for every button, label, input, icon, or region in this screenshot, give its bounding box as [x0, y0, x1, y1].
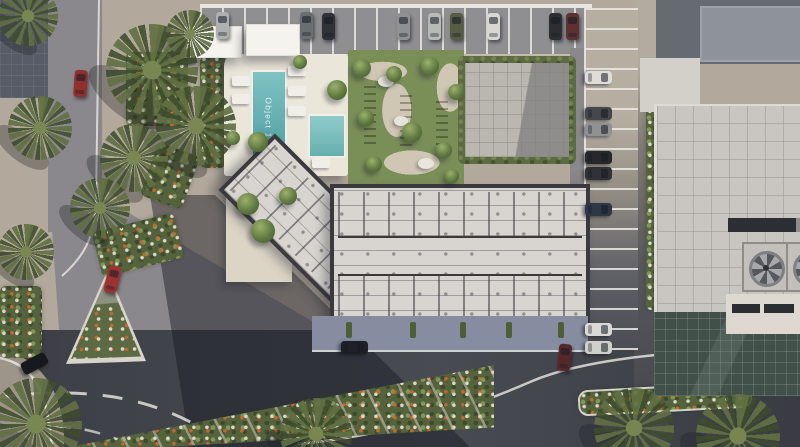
apartment-rooms	[338, 192, 582, 238]
fan-icon	[749, 251, 785, 287]
car	[487, 13, 500, 40]
hvac-fan-unit	[786, 242, 800, 292]
round-tree	[448, 84, 464, 100]
car	[428, 13, 441, 40]
walkway-planter	[558, 322, 564, 338]
car	[585, 151, 612, 164]
round-tree	[386, 66, 402, 82]
car-windshield	[551, 17, 560, 24]
fan-icon	[793, 251, 800, 287]
pool-label: Object 1	[264, 97, 274, 138]
car	[585, 341, 612, 354]
neighbor-roof-panel	[700, 6, 800, 62]
pool-lounger	[232, 94, 250, 104]
pool-lounger	[232, 76, 250, 86]
car-windshield	[601, 205, 608, 214]
car-windshield	[302, 16, 311, 23]
car-windshield	[452, 17, 461, 24]
site-plan-render: Object 1	[0, 0, 800, 447]
car-windshield	[601, 343, 608, 352]
car	[549, 13, 562, 40]
car	[566, 13, 579, 40]
palm-tree	[0, 224, 54, 280]
round-tree	[421, 57, 439, 75]
pool-lounger	[288, 106, 306, 116]
car-windshield	[601, 73, 608, 82]
car-windshield	[601, 153, 608, 162]
car	[585, 203, 612, 216]
round-tree	[445, 169, 459, 183]
round-tree	[327, 80, 347, 100]
car-windshield	[430, 17, 439, 24]
shade-canopy	[246, 24, 300, 56]
car	[300, 12, 313, 39]
kids-pool	[308, 114, 346, 158]
pool-lounger	[288, 86, 306, 96]
tower-roof-hedge	[458, 56, 576, 164]
walkway-planter	[346, 322, 352, 338]
round-tree	[358, 110, 374, 126]
round-tree	[251, 219, 275, 243]
round-tree	[366, 156, 382, 172]
apartment-wing-main	[330, 184, 590, 330]
walkway-planter	[410, 322, 416, 338]
car-windshield	[489, 17, 498, 24]
window-slit	[732, 304, 760, 313]
car	[585, 323, 612, 336]
palm-tree	[70, 178, 130, 238]
palm-tree	[156, 86, 236, 166]
car-windshield	[601, 169, 608, 178]
walkway-planter	[506, 322, 512, 338]
car	[397, 13, 410, 40]
car	[341, 341, 368, 354]
palm-tree	[8, 96, 72, 160]
round-tree	[436, 142, 452, 158]
car-windshield	[399, 17, 408, 24]
car	[585, 167, 612, 180]
round-tree	[402, 122, 422, 142]
round-tree	[226, 131, 240, 145]
window-slit	[764, 304, 794, 313]
tower-roof	[465, 63, 569, 157]
car	[585, 123, 612, 136]
boulder	[418, 158, 434, 169]
car-windshield	[601, 125, 608, 134]
car	[450, 13, 463, 40]
roof-vent-band	[728, 218, 800, 232]
round-tree	[248, 132, 268, 152]
car-windshield	[560, 348, 570, 356]
car-windshield	[601, 109, 608, 118]
car-windshield	[35, 355, 45, 366]
car	[73, 70, 88, 98]
round-tree	[353, 59, 371, 77]
car-windshield	[601, 325, 608, 334]
apartment-rooms	[338, 274, 582, 322]
car-windshield	[324, 17, 333, 24]
palm-tree	[166, 10, 214, 58]
car-windshield	[568, 17, 577, 24]
car	[322, 13, 335, 40]
car	[585, 107, 612, 120]
pool-lounger	[312, 158, 330, 168]
car-windshield	[109, 269, 119, 278]
round-tree	[237, 193, 259, 215]
walkway-planter	[460, 322, 466, 338]
hvac-fan-unit	[742, 242, 788, 292]
car-windshield	[218, 16, 227, 23]
car-windshield	[76, 74, 85, 82]
round-tree	[279, 187, 297, 205]
car	[216, 12, 229, 39]
car	[585, 71, 612, 84]
round-tree	[293, 55, 307, 69]
flower-bed	[0, 286, 42, 358]
white-facade	[726, 294, 800, 334]
car-windshield	[357, 343, 364, 352]
